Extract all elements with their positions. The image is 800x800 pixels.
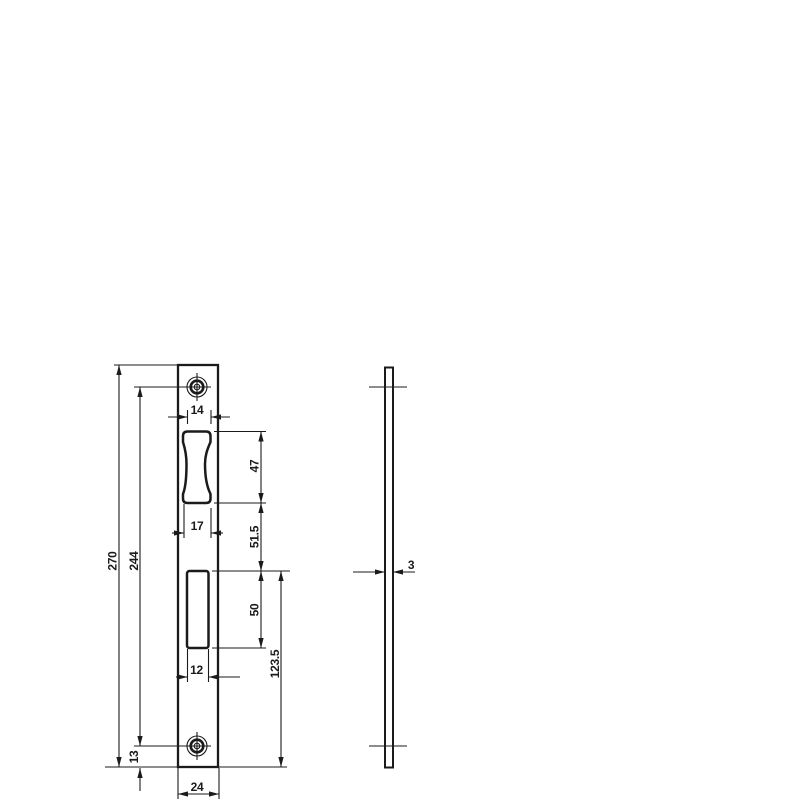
dim-latch-height: 47 xyxy=(214,432,266,504)
drawing-page: 270 244 13 14 47 17 51.5 xyxy=(0,0,800,800)
dim-label-latch-deadbolt-gap: 51.5 xyxy=(248,525,262,548)
dim-label-latch-bottom-width: 17 xyxy=(191,519,204,533)
technical-drawing: 270 244 13 14 47 17 51.5 xyxy=(0,0,800,800)
dim-label-screw-spacing: 244 xyxy=(127,551,141,571)
plate-outline xyxy=(178,365,218,767)
deadbolt-cutout xyxy=(187,571,209,648)
dim-label-plate-width: 24 xyxy=(191,780,204,794)
latch-cutout xyxy=(183,432,211,504)
dim-label-deadbolt-height: 50 xyxy=(248,603,262,616)
dim-label-deadbolt-to-bottom: 123.5 xyxy=(268,649,282,678)
dim-label-latch-top-width: 14 xyxy=(191,403,204,417)
front-view xyxy=(178,365,218,767)
dim-label-overall-height: 270 xyxy=(106,551,120,571)
dim-deadbolt-to-bottom: 123.5 xyxy=(268,571,282,767)
dim-label-deadbolt-width: 12 xyxy=(190,663,203,677)
dim-latch-bottom-width: 17 xyxy=(172,504,223,538)
dim-plate-width: 24 xyxy=(178,768,219,799)
dim-screw-spacing: 244 xyxy=(127,387,211,746)
side-profile-outline xyxy=(385,368,393,768)
dim-label-thickness: 3 xyxy=(408,558,415,572)
dim-label-bottom-screw-offset: 13 xyxy=(127,750,141,763)
side-view xyxy=(369,368,407,768)
dim-latch-deadbolt-gap: 51.5 xyxy=(248,503,262,571)
dim-deadbolt-height: 50 xyxy=(212,571,290,648)
dim-deadbolt-width: 12 xyxy=(176,649,240,682)
dim-label-latch-height: 47 xyxy=(248,459,262,472)
dim-bottom-screw-offset: 13 xyxy=(127,750,141,791)
